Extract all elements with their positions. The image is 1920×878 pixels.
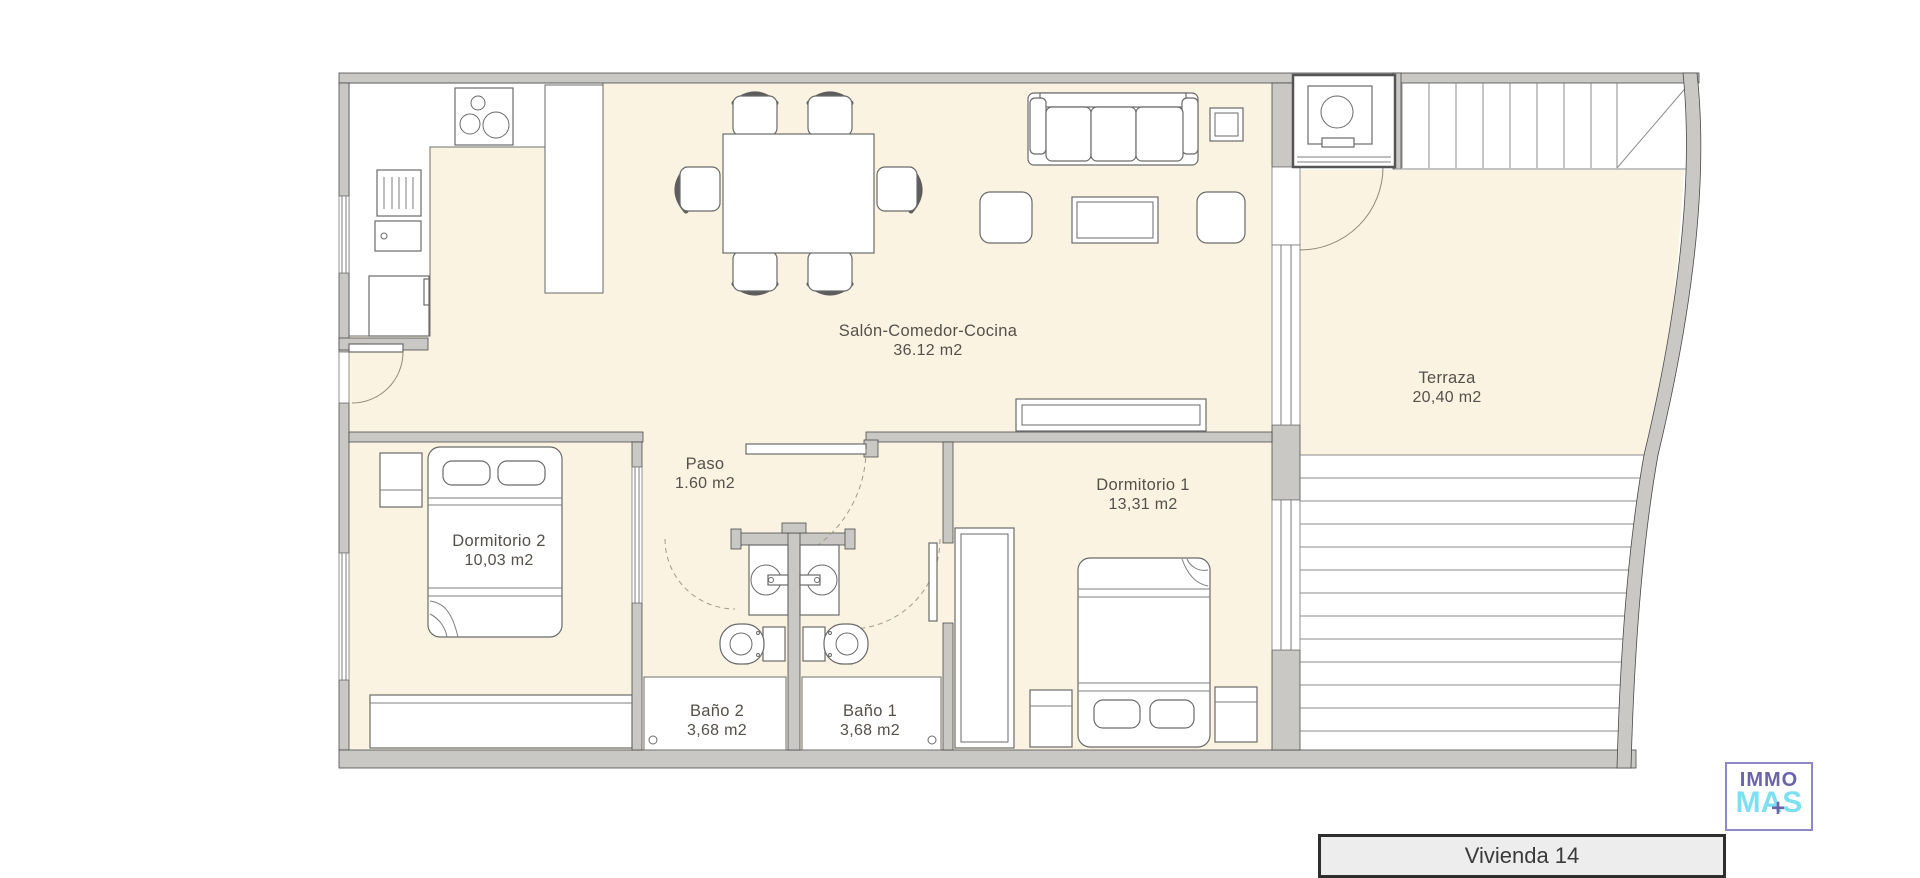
lower-staircase <box>1300 455 1652 731</box>
room-label-bano2: Baño 2 3,68 m2 <box>687 702 747 740</box>
nightstand <box>380 453 422 507</box>
room-area: 20,40 m2 <box>1412 388 1481 407</box>
room-area: 3,68 m2 <box>687 721 747 740</box>
bed-double <box>1078 558 1210 747</box>
dining-chair <box>808 251 852 293</box>
dormitorio2-sliding-door <box>632 467 642 603</box>
nightstand <box>1030 690 1072 747</box>
room-label-paso: Paso 1.60 m2 <box>675 455 735 493</box>
side-table <box>1210 108 1243 141</box>
bano2-toilet <box>720 624 785 664</box>
logo-text-mas: MAS <box>1727 790 1811 816</box>
room-name: Dormitorio 1 <box>1096 476 1189 495</box>
bano2-vanity <box>749 545 788 615</box>
bano1-vanity <box>800 545 839 615</box>
tv-sideboard <box>1016 399 1206 431</box>
coffee-table <box>1072 197 1158 243</box>
room-label-terraza: Terraza 20,40 m2 <box>1412 369 1481 407</box>
room-area: 1.60 m2 <box>675 474 735 493</box>
room-area: 36.12 m2 <box>839 341 1017 360</box>
kitchen-window <box>339 196 349 273</box>
room-name: Baño 2 <box>687 702 747 721</box>
room-name: Terraza <box>1412 369 1481 388</box>
room-name: Baño 1 <box>840 702 900 721</box>
dining-chair <box>877 167 920 211</box>
floor-plan-stage: Salón-Comedor-Cocina 36.12 m2 Terraza 20… <box>0 0 1920 860</box>
unit-title-box: Vivienda 14 <box>1318 834 1726 878</box>
immomas-logo: IMMO MAS + <box>1725 762 1813 831</box>
room-label-bano1: Baño 1 3,68 m2 <box>840 702 900 740</box>
sofa <box>1028 93 1198 165</box>
room-area: 3,68 m2 <box>840 721 900 740</box>
armchair <box>1197 192 1245 243</box>
dining-chair <box>677 167 720 211</box>
room-label-dormitorio1: Dormitorio 1 13,31 m2 <box>1096 476 1189 514</box>
logo-plus-icon: + <box>1771 797 1785 821</box>
dining-chair <box>808 94 852 136</box>
dormitorio1-window <box>1272 500 1300 650</box>
bano1-toilet <box>803 624 868 664</box>
room-area: 13,31 m2 <box>1096 495 1189 514</box>
dining-chair <box>733 251 777 293</box>
room-name: Salón-Comedor-Cocina <box>839 322 1017 341</box>
dormitorio2-window <box>339 553 349 680</box>
upper-stairwell <box>1395 83 1695 169</box>
armchair <box>980 192 1032 243</box>
room-name: Paso <box>675 455 735 474</box>
stair-diagonal <box>1617 84 1689 168</box>
room-area: 10,03 m2 <box>452 551 545 570</box>
dining-table <box>723 134 874 253</box>
stove <box>455 88 513 145</box>
living-window <box>1272 245 1300 425</box>
dining-chair <box>733 94 777 136</box>
nightstand <box>1215 687 1257 742</box>
room-label-dormitorio2: Dormitorio 2 10,03 m2 <box>452 532 545 570</box>
room-name: Dormitorio 2 <box>452 532 545 551</box>
dormitorio1-door <box>929 543 937 621</box>
floor-plan-drawing <box>0 0 1920 860</box>
room-label-salon: Salón-Comedor-Cocina 36.12 m2 <box>839 322 1017 360</box>
unit-title: Vivienda 14 <box>1465 843 1580 868</box>
wardrobe <box>955 528 1014 748</box>
kitchen-cabinet <box>369 276 429 336</box>
dresser <box>370 695 632 748</box>
heater-closet <box>1293 75 1395 167</box>
oven <box>375 221 421 251</box>
dishwasher <box>377 170 421 216</box>
